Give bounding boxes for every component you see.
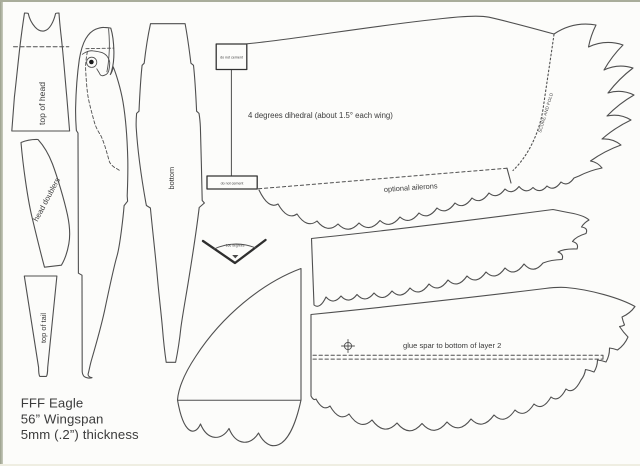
svg-text:head doublers: head doublers	[31, 176, 62, 223]
svg-text:SCORE AND FOLD: SCORE AND FOLD	[537, 92, 554, 133]
svg-text:glue spar to bottom of layer 2: glue spar to bottom of layer 2	[403, 341, 501, 350]
svg-text:top of head: top of head	[37, 82, 47, 125]
svg-text:56” Wingspan: 56” Wingspan	[21, 412, 104, 427]
svg-text:FFF Eagle: FFF Eagle	[21, 395, 84, 410]
svg-text:do not cement: do not cement	[221, 182, 244, 186]
svg-text:top of tail: top of tail	[39, 313, 48, 343]
svg-text:5mm (.2”) thickness: 5mm (.2”) thickness	[21, 427, 139, 442]
svg-text:optional ailerons: optional ailerons	[384, 181, 439, 194]
svg-text:bottom: bottom	[167, 167, 176, 190]
svg-text:4 degrees dihedral (about 1.5°: 4 degrees dihedral (about 1.5° each wing…	[248, 111, 393, 120]
svg-text:166 degrees: 166 degrees	[226, 244, 245, 248]
svg-text:do not cement: do not cement	[220, 56, 243, 60]
